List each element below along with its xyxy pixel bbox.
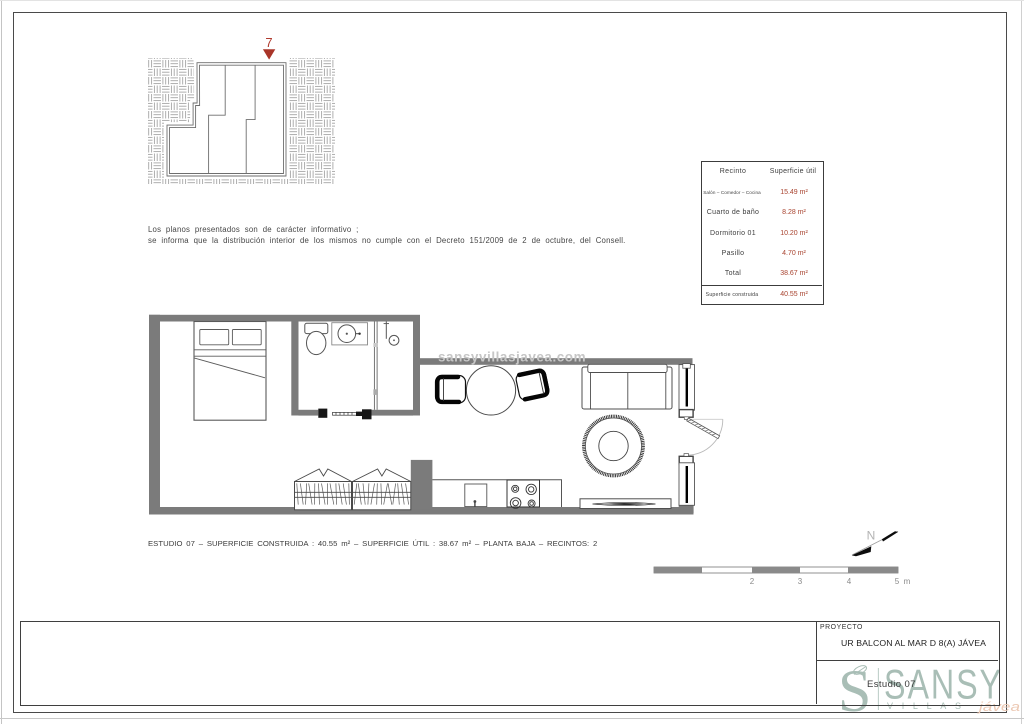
svg-text:sansyvillasjavea.com: sansyvillasjavea.com (438, 350, 586, 365)
svg-text:5: 5 (895, 577, 900, 586)
svg-text:4: 4 (847, 577, 852, 586)
svg-text:N: N (867, 529, 876, 543)
svg-text:2: 2 (750, 577, 755, 586)
svg-text:3: 3 (798, 577, 803, 586)
svg-text:m: m (904, 577, 911, 586)
svg-text:7: 7 (265, 35, 272, 50)
